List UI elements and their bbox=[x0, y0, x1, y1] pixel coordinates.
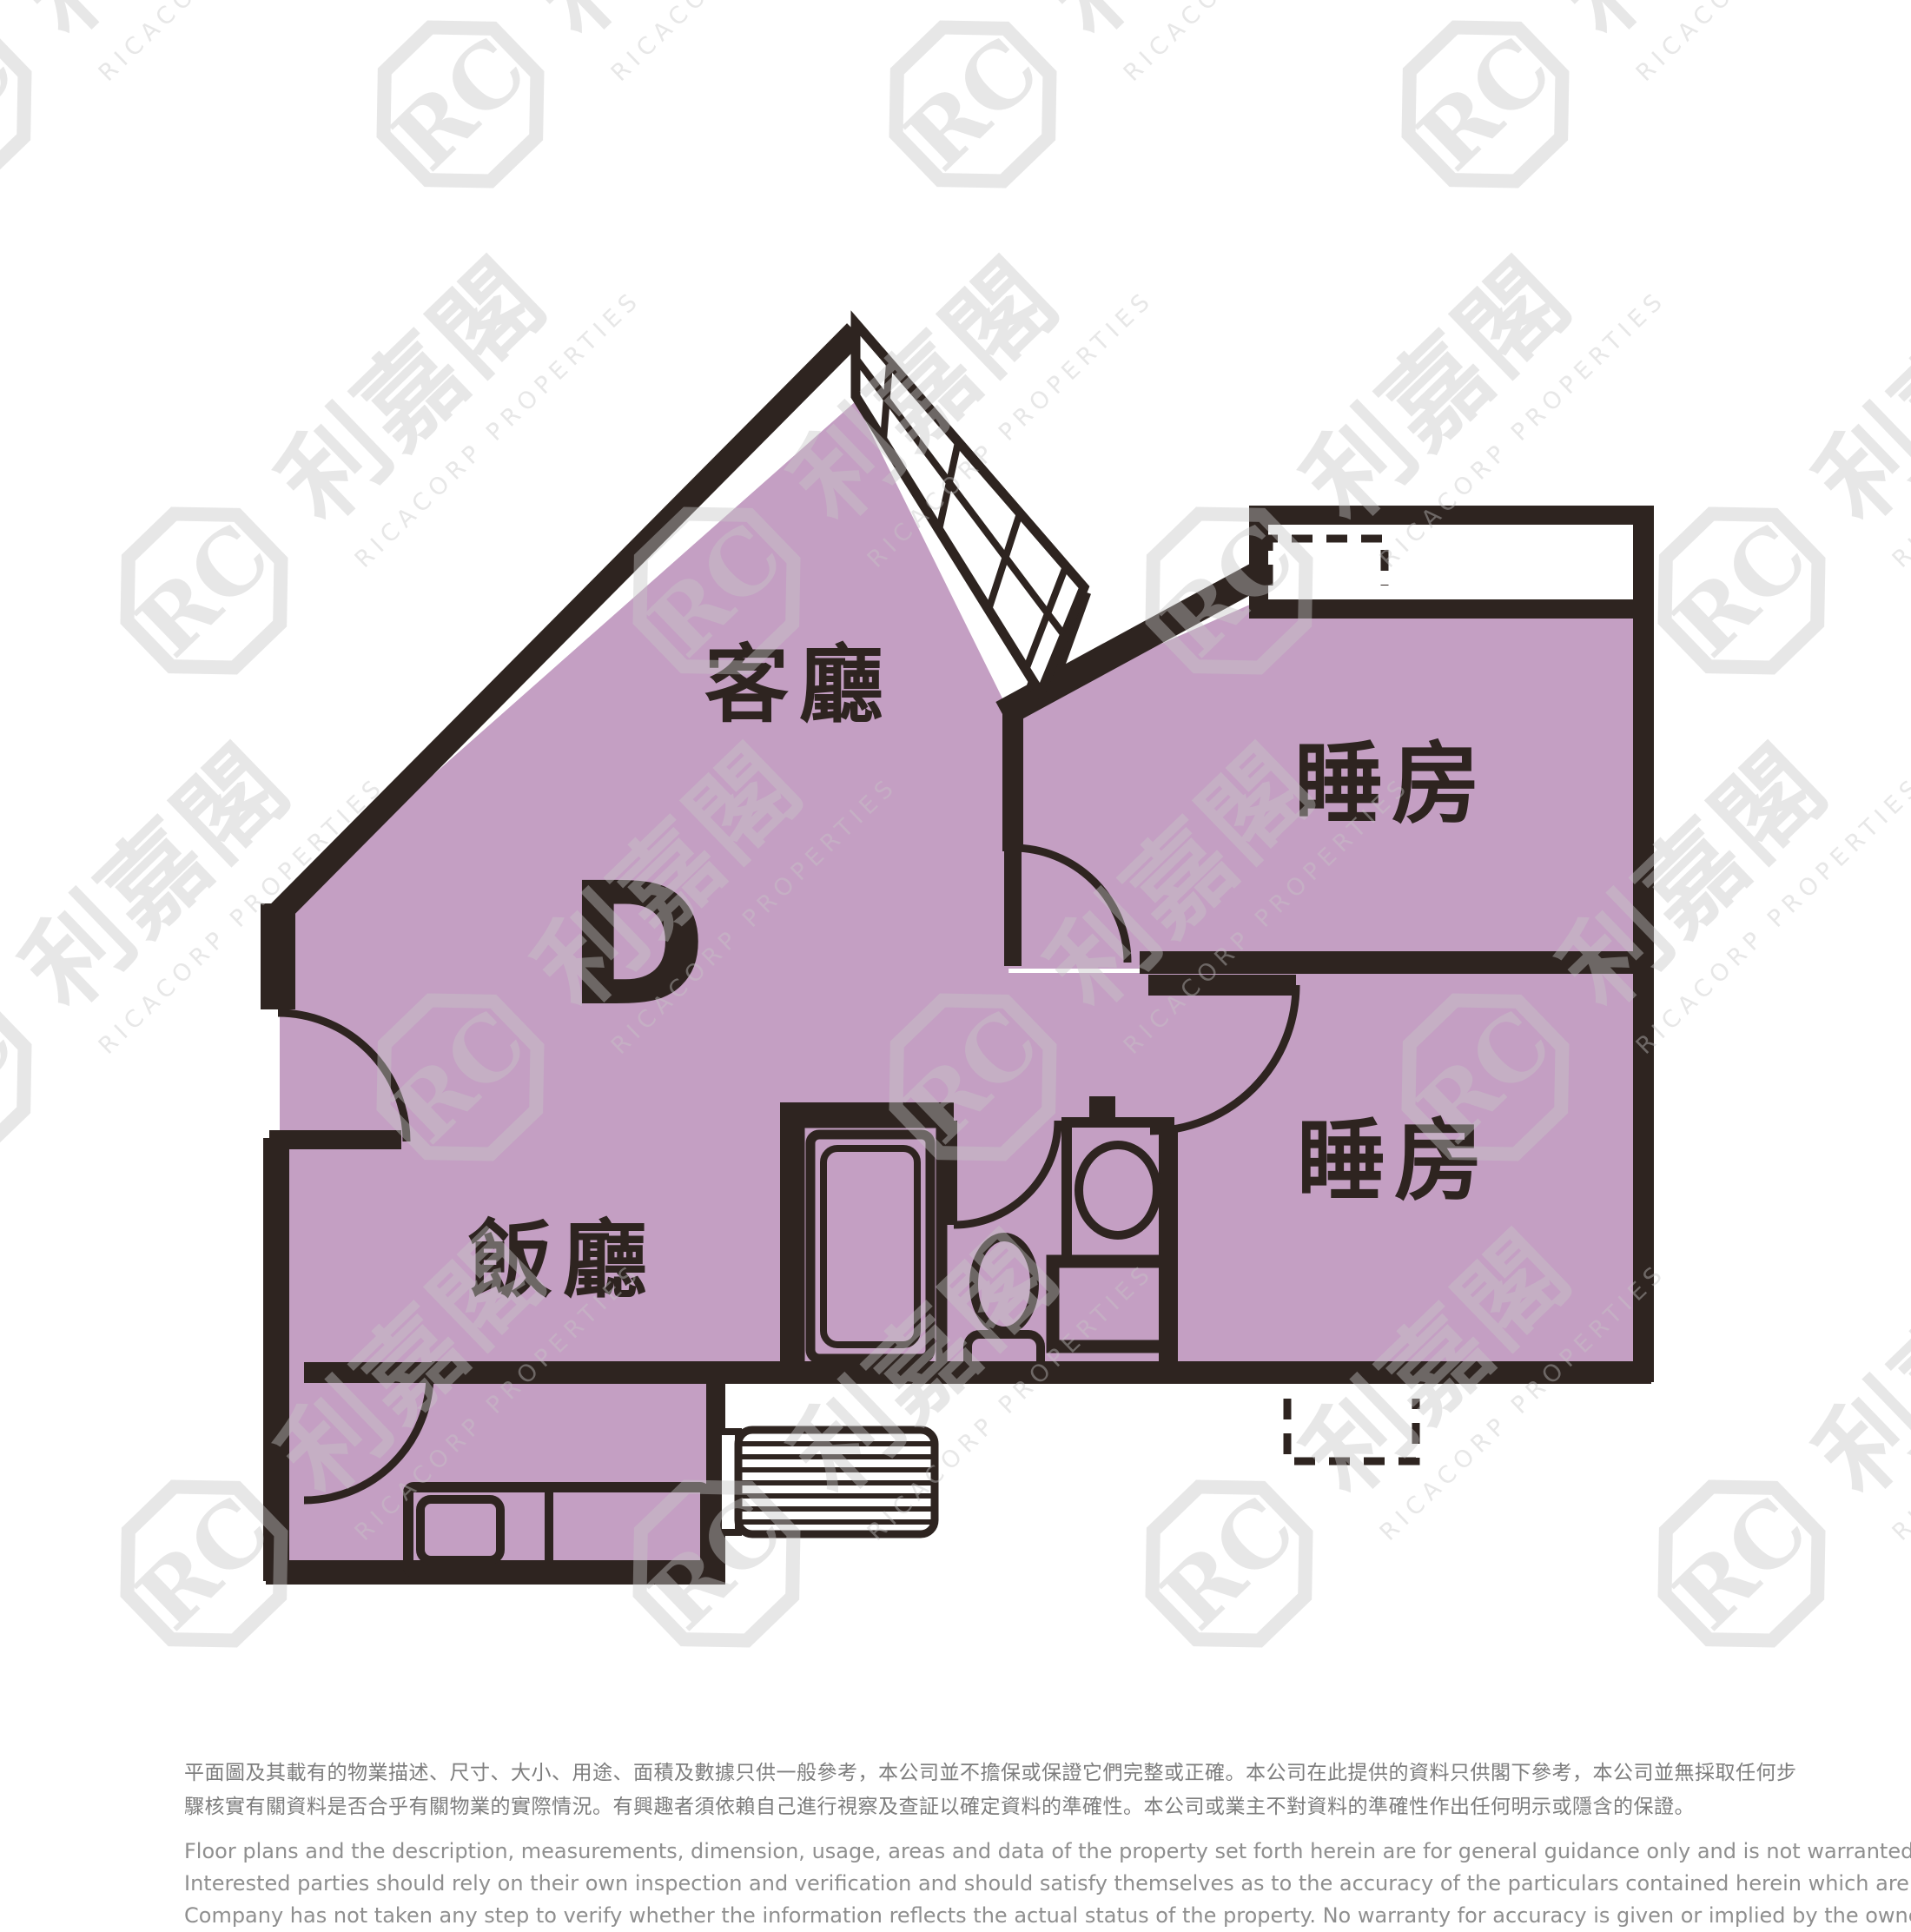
watermark-unit: RC利嘉閣RICACORP PROPERTIES bbox=[353, 0, 903, 230]
watermark-brand-en: RICACORP PROPERTIES bbox=[94, 0, 391, 87]
watermark-monogram: RC bbox=[117, 504, 290, 676]
floorplan-page: { "colors": { "floor_fill": "#c49fc3", "… bbox=[0, 0, 1911, 1911]
watermark-monogram: RC bbox=[1655, 1477, 1828, 1649]
living-room-label: 客廳 bbox=[704, 636, 894, 734]
entrance-jamb bbox=[261, 903, 295, 1009]
watermark-monogram: RC bbox=[374, 17, 546, 189]
watermark-monogram: RC bbox=[886, 17, 1059, 189]
watermark-unit: RC利嘉閣RICACORP PROPERTIES bbox=[1378, 0, 1911, 230]
watermark-brand-en: RICACORP PROPERTIES bbox=[1119, 0, 1416, 87]
floor-plan-drawing: 客廳 D 飯廳 睡房 睡房 RC利嘉閣RICACORP PROPERTIESRC… bbox=[0, 0, 1911, 1911]
disclaimer-zh-line2: 驟核實有關資料是否合乎有關物業的實際情況。有興趣者須依賴自己進行視察及查証以確定… bbox=[184, 1790, 1748, 1824]
watermark-unit: RC利嘉閣RICACORP PROPERTIES bbox=[865, 0, 1416, 230]
disclaimer-zh-line1: 平面圖及其載有的物業描述、尺寸、大小、用途、面積及數據只供一般參考，本公司並不擔… bbox=[184, 1757, 1748, 1790]
watermark-brand-en: RICACORP PROPERTIES bbox=[606, 0, 903, 87]
watermark-brand-char: 利 bbox=[1795, 387, 1911, 544]
watermark-monogram: RC bbox=[1142, 1477, 1315, 1649]
disclaimer-block: 平面圖及其載有的物業描述、尺寸、大小、用途、面積及數據只供一般參考，本公司並不擔… bbox=[184, 1757, 1748, 1932]
watermark-unit: RC利嘉閣RICACORP PROPERTIES bbox=[0, 0, 391, 230]
watermark-monogram: RC bbox=[1655, 504, 1828, 676]
disclaimer-en-line3: Company has not taken any step to verify… bbox=[184, 1900, 1748, 1932]
watermark-monogram: RC bbox=[1399, 17, 1571, 189]
disclaimer-en-line1: Floor plans and the description, measure… bbox=[184, 1836, 1748, 1868]
watermark-brand-en: RICACORP PROPERTIES bbox=[1631, 0, 1911, 87]
watermark-unit: RC利嘉閣RICACORP PROPERTIES bbox=[1634, 176, 1911, 717]
watermark-unit: RC利嘉閣RICACORP PROPERTIES bbox=[1634, 1149, 1911, 1690]
watermark-brand-char: 利 bbox=[1795, 1360, 1911, 1517]
disclaimer-en-line2: Interested parties should rely on their … bbox=[184, 1868, 1748, 1900]
